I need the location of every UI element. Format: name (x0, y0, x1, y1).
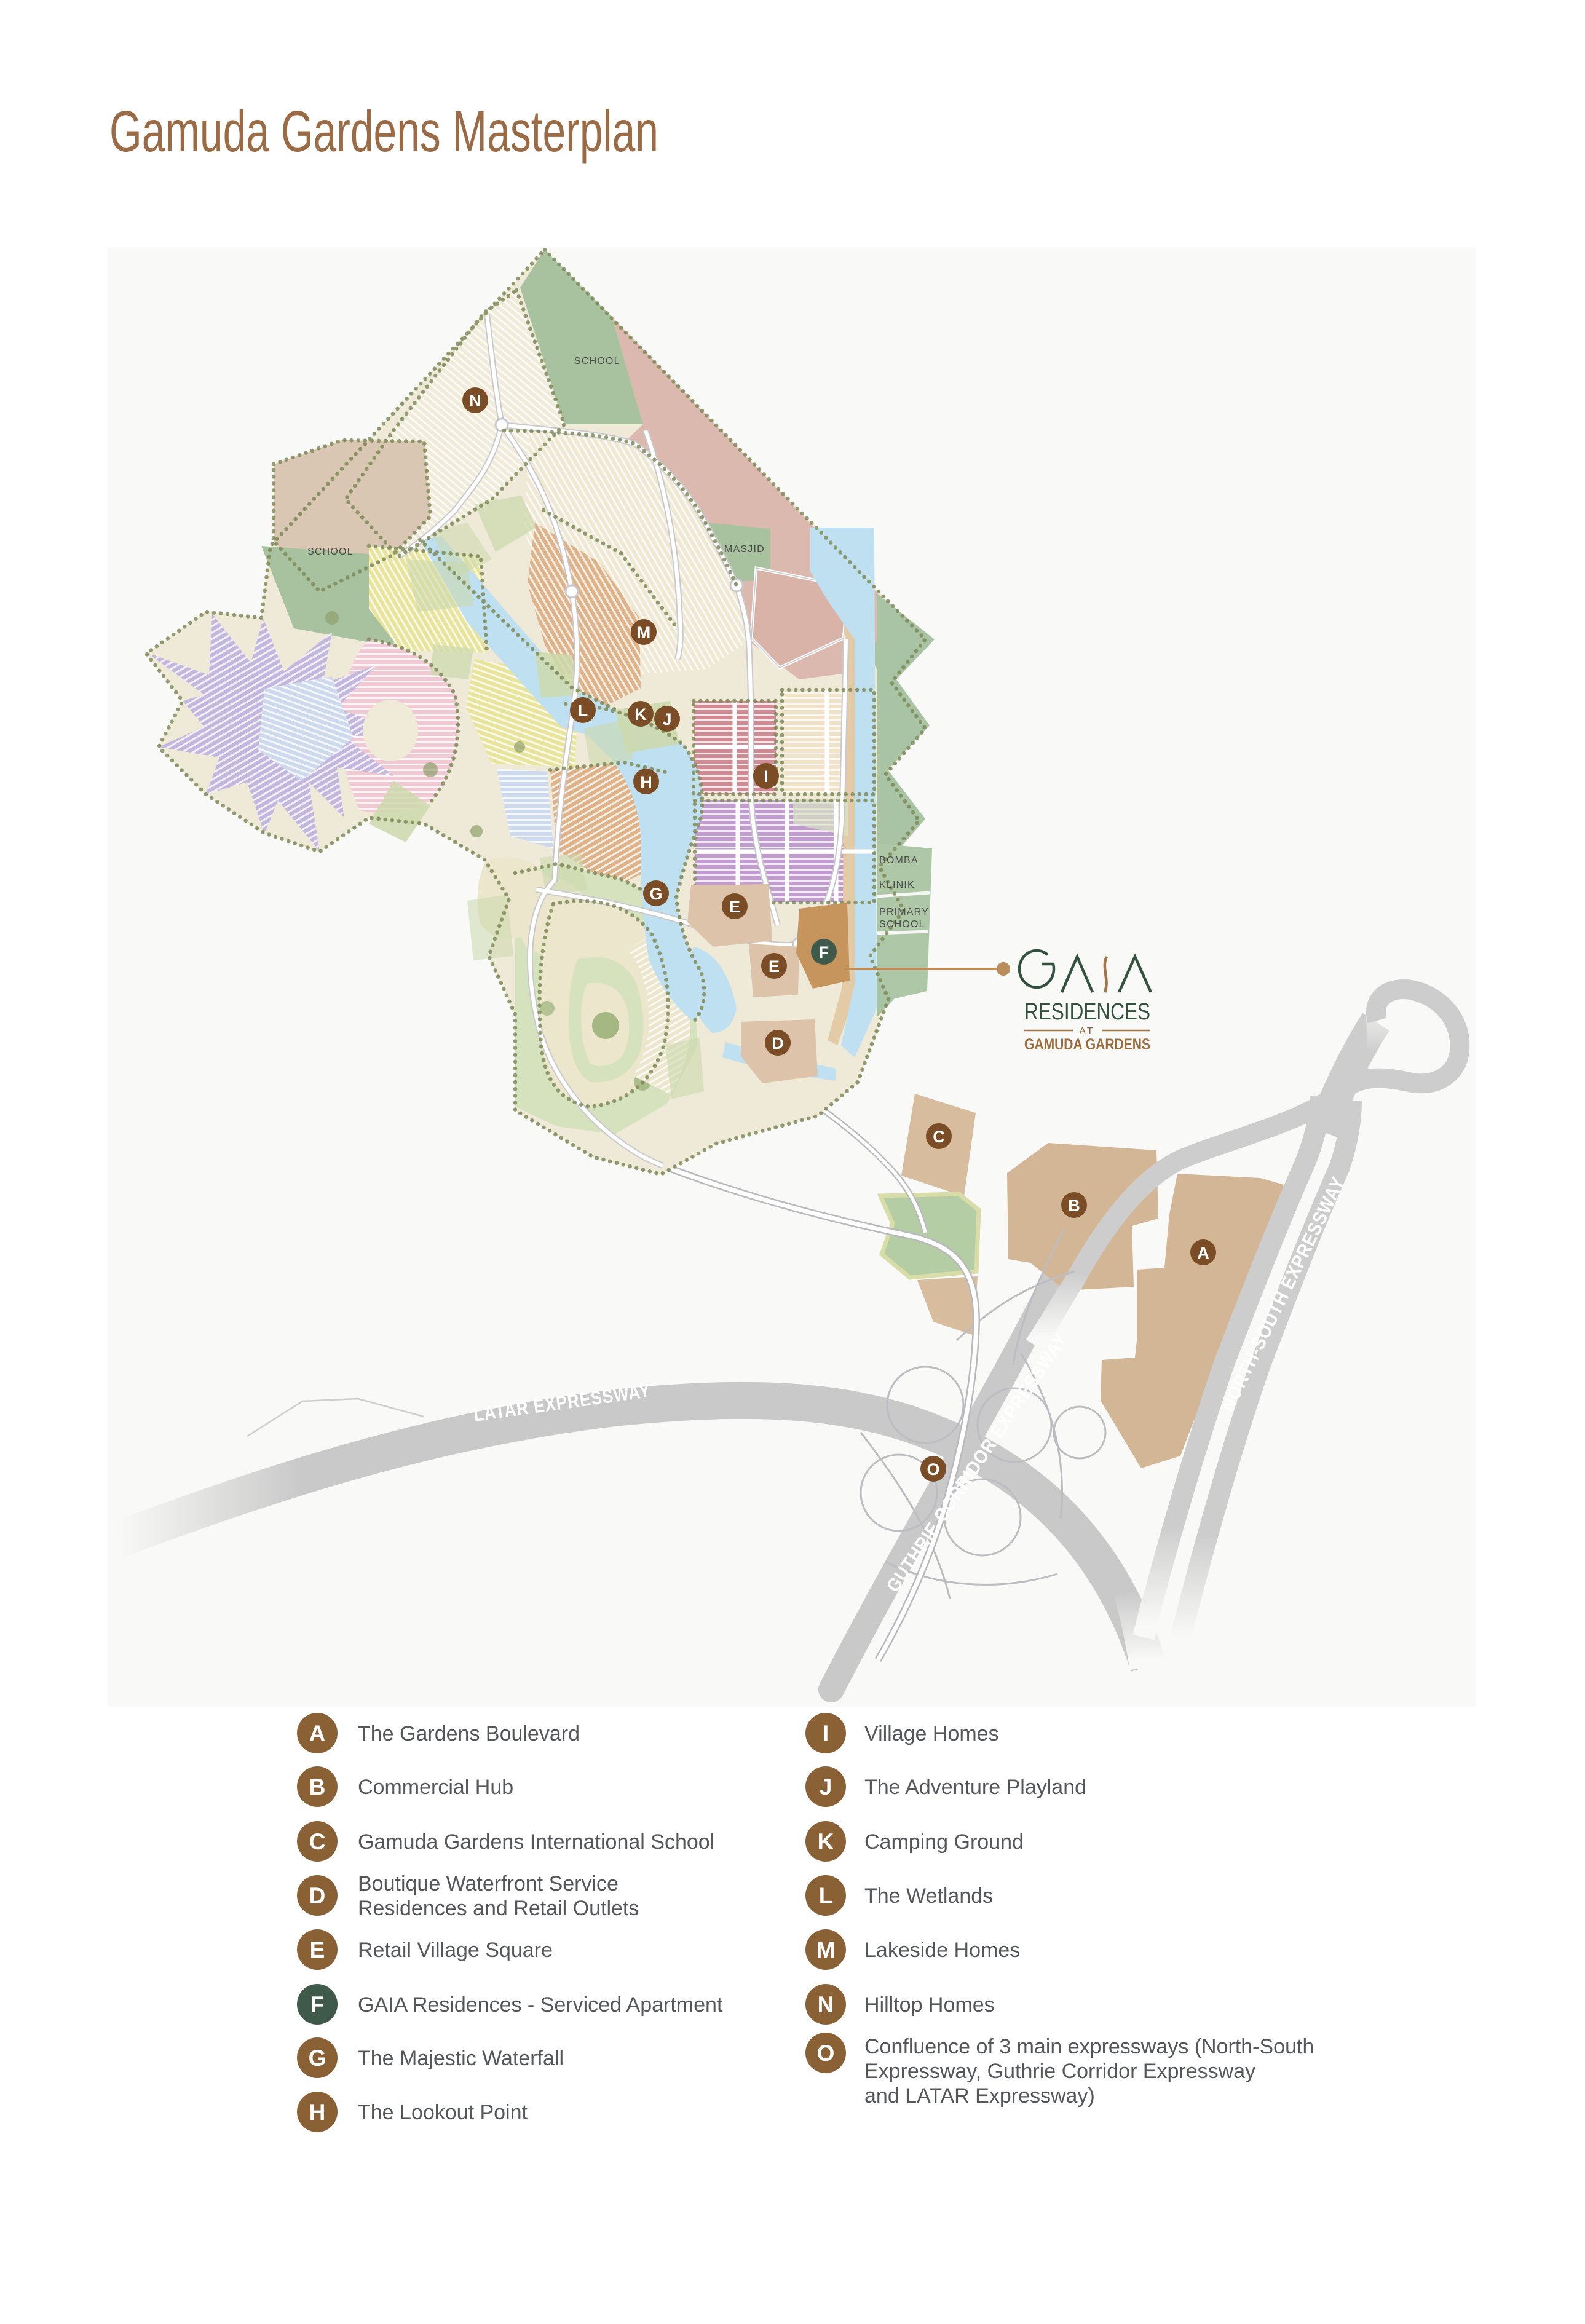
svg-text:K: K (818, 1829, 834, 1854)
svg-text:PRIMARY: PRIMARY (879, 907, 929, 917)
svg-text:C: C (309, 1829, 326, 1854)
svg-text:SCHOOL: SCHOOL (879, 919, 925, 930)
svg-text:O: O (817, 2041, 835, 2066)
svg-text:K: K (634, 705, 647, 724)
svg-text:Boutique Waterfront Service: Boutique Waterfront Service (358, 1872, 619, 1895)
svg-text:and LATAR Expressway): and LATAR Expressway) (864, 2084, 1095, 2108)
svg-text:Camping Ground: Camping Ground (864, 1830, 1024, 1854)
svg-text:SCHOOL: SCHOOL (574, 356, 620, 366)
svg-text:I: I (764, 767, 769, 786)
svg-text:A: A (309, 1721, 326, 1746)
svg-text:E: E (310, 1937, 325, 1962)
svg-text:Retail Village Square: Retail Village Square (358, 1939, 553, 1962)
svg-text:The Lookout Point: The Lookout Point (358, 2101, 528, 2124)
svg-text:F: F (819, 943, 829, 962)
svg-text:Residences and Retail Outlets: Residences and Retail Outlets (358, 1897, 639, 1920)
svg-text:H: H (640, 773, 652, 791)
svg-text:MASJID: MASJID (724, 544, 765, 555)
svg-text:AT: AT (1079, 1026, 1094, 1037)
svg-text:N: N (469, 392, 481, 410)
svg-text:F: F (310, 1992, 325, 2017)
svg-text:L: L (819, 1883, 833, 1908)
svg-text:G: G (309, 2045, 326, 2071)
svg-text:C: C (933, 1128, 945, 1146)
svg-text:M: M (637, 623, 651, 642)
svg-text:Hilltop Homes: Hilltop Homes (864, 1993, 995, 2017)
svg-text:H: H (309, 2100, 326, 2125)
svg-text:The Majestic Waterfall: The Majestic Waterfall (358, 2047, 564, 2070)
svg-text:Commercial Hub: Commercial Hub (358, 1776, 513, 1799)
svg-text:I: I (823, 1721, 829, 1746)
svg-text:Expressway, Guthrie Corridor E: Expressway, Guthrie Corridor Expressway (864, 2060, 1255, 2083)
svg-text:E: E (729, 898, 740, 916)
svg-text:Gamuda Gardens International S: Gamuda Gardens International School (358, 1830, 714, 1854)
svg-text:M: M (816, 1937, 836, 1962)
svg-text:The Gardens Boulevard: The Gardens Boulevard (358, 1722, 580, 1745)
svg-text:O: O (927, 1460, 939, 1479)
svg-text:The Wetlands: The Wetlands (864, 1884, 993, 1908)
svg-text:D: D (309, 1883, 326, 1908)
svg-text:RESIDENCES: RESIDENCES (1024, 999, 1150, 1025)
svg-text:B: B (309, 1774, 326, 1800)
svg-text:KLINIK: KLINIK (879, 880, 915, 890)
svg-text:J: J (820, 1774, 832, 1800)
svg-text:The Adventure Playland: The Adventure Playland (864, 1776, 1086, 1799)
svg-text:Gamuda Gardens Masterplan: Gamuda Gardens Masterplan (109, 99, 658, 164)
svg-text:Lakeside Homes: Lakeside Homes (864, 1939, 1020, 1962)
svg-text:A: A (1197, 1244, 1209, 1262)
svg-text:GAMUDA GARDENS: GAMUDA GARDENS (1024, 1036, 1150, 1053)
svg-text:L: L (578, 702, 588, 720)
svg-text:Confluence of 3 main expresswa: Confluence of 3 main expressways (North-… (864, 2035, 1314, 2058)
svg-text:GAIA Residences - Serviced Apa: GAIA Residences - Serviced Apartment (358, 1993, 723, 2017)
svg-text:N: N (818, 1992, 834, 2017)
svg-text:SCHOOL: SCHOOL (307, 547, 354, 557)
svg-text:B: B (1068, 1196, 1080, 1215)
svg-text:E: E (769, 957, 780, 976)
svg-text:G: G (649, 885, 662, 903)
svg-text:J: J (662, 710, 671, 729)
svg-text:D: D (772, 1034, 784, 1053)
svg-text:BOMBA: BOMBA (879, 855, 919, 866)
svg-text:Village Homes: Village Homes (864, 1722, 999, 1745)
